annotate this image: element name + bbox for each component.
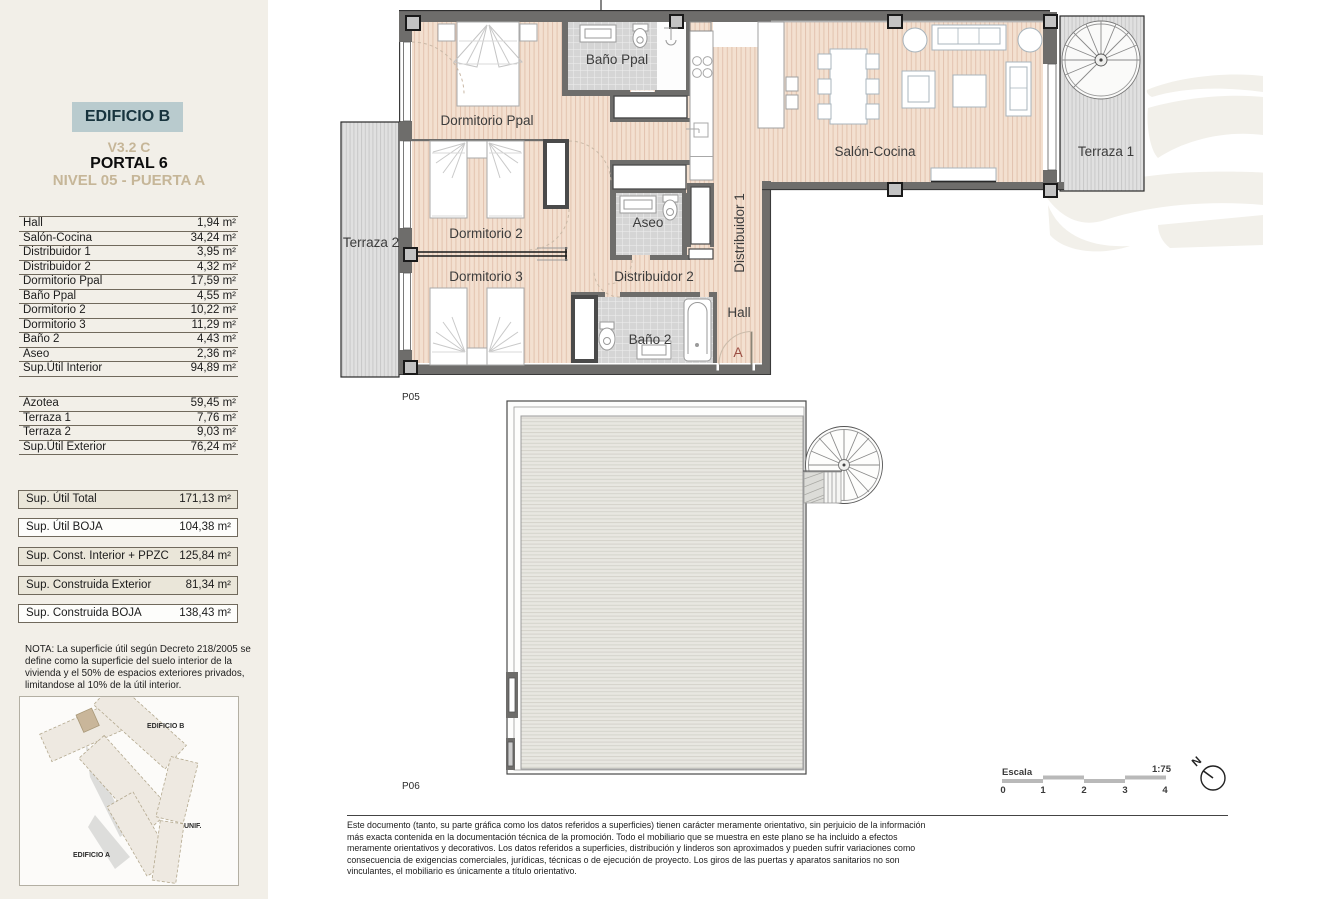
svg-text:Distribuidor 2: Distribuidor 2	[614, 269, 694, 284]
svg-text:Terraza 1: Terraza 1	[1078, 144, 1134, 159]
svg-text:A: A	[733, 344, 743, 360]
svg-text:Dormitorio 2: Dormitorio 2	[449, 226, 523, 241]
svg-text:Escala: Escala	[1002, 767, 1033, 778]
svg-text:Dormitorio Ppal: Dormitorio Ppal	[440, 113, 533, 128]
svg-text:Terraza 2: Terraza 2	[343, 235, 399, 250]
svg-text:Baño 2: Baño 2	[629, 332, 672, 347]
svg-text:N: N	[1190, 755, 1204, 769]
svg-text:Aseo: Aseo	[633, 215, 664, 230]
svg-text:Hall: Hall	[727, 305, 750, 320]
svg-text:3: 3	[1122, 785, 1127, 796]
svg-text:2: 2	[1081, 785, 1086, 796]
svg-text:1:75: 1:75	[1152, 764, 1172, 775]
svg-text:Distribuidor 1: Distribuidor 1	[732, 193, 747, 273]
svg-text:Salón-Cocina: Salón-Cocina	[834, 144, 916, 159]
svg-text:Dormitorio 3: Dormitorio 3	[449, 269, 523, 284]
svg-text:4: 4	[1162, 785, 1168, 796]
svg-text:1: 1	[1040, 785, 1046, 796]
svg-text:Baño Ppal: Baño Ppal	[586, 52, 648, 67]
svg-text:0: 0	[1000, 785, 1005, 796]
